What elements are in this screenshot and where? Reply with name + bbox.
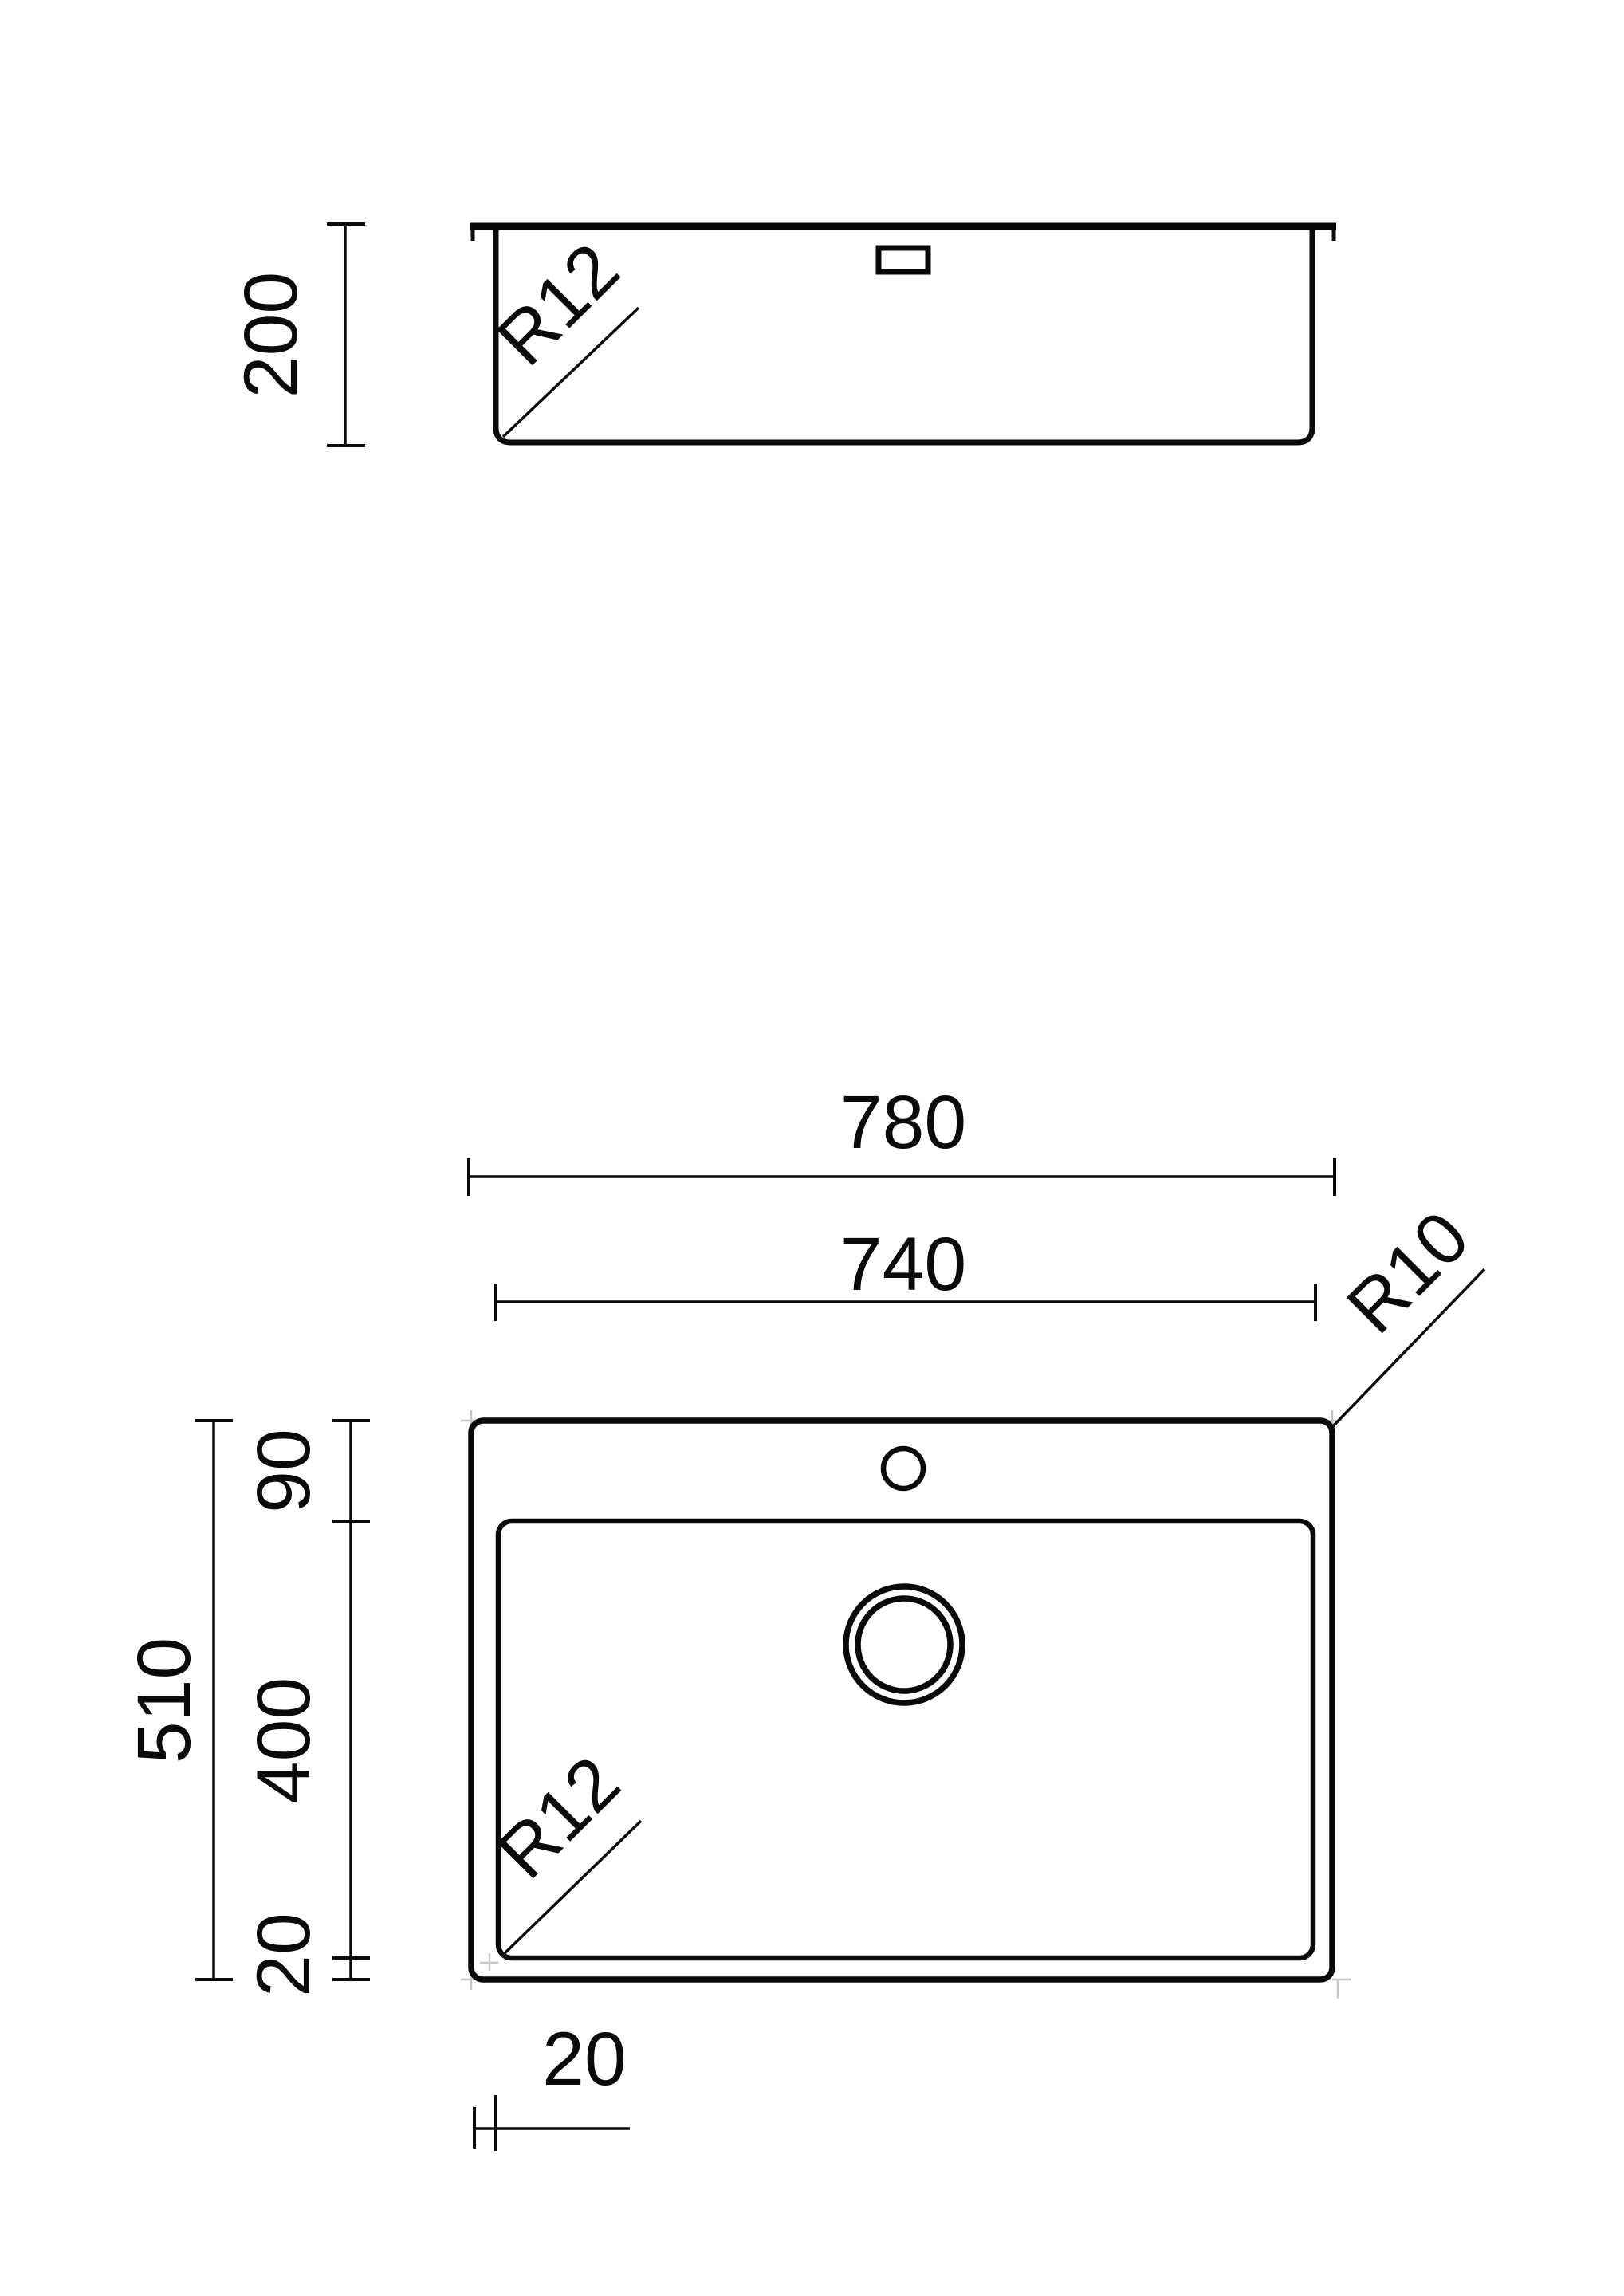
plan-drain-outer-circle xyxy=(846,1586,962,1703)
side-overflow-hole xyxy=(879,248,928,272)
plan-bowl-radius-label: R12 xyxy=(482,1741,635,1893)
side-bowl-radius-label: R12 xyxy=(482,228,634,380)
dim-400-value: 400 xyxy=(242,1677,326,1804)
dim-side-inset: 20 xyxy=(473,2017,630,2151)
corner-mark-inner-bottom-left xyxy=(480,1953,498,1971)
side-view: R12 200 xyxy=(229,224,1336,446)
sink-dimension-drawing: R12 200 xyxy=(0,0,1624,2296)
plan-outer-radius-label: R10 xyxy=(1331,1196,1484,1348)
side-depth-value: 200 xyxy=(229,272,313,399)
side-bowl-profile xyxy=(496,230,1312,442)
dim-bowl-width: 740 xyxy=(496,1222,1315,1321)
dim-overall-depth: 510 xyxy=(122,1421,233,1980)
plan-faucet-hole xyxy=(883,1449,923,1488)
corner-mark-bottom-right xyxy=(1332,1980,1351,1999)
dim-510-value: 510 xyxy=(122,1637,206,1764)
dim-depth-chain: 90 400 20 xyxy=(242,1421,370,1997)
dim-740-value: 740 xyxy=(840,1222,967,1307)
dim-780-value: 780 xyxy=(840,1080,967,1165)
dim-90-value: 90 xyxy=(242,1429,326,1513)
dim-20-bottom-value: 20 xyxy=(542,2017,627,2101)
plan-view: R10 R12 780 740 xyxy=(122,1080,1484,2151)
dim-overall-width: 780 xyxy=(469,1080,1335,1196)
dim-20-left-value: 20 xyxy=(242,1913,326,1997)
technical-drawing-sheet: R12 200 xyxy=(0,0,1624,2296)
plan-drain-inner-circle xyxy=(858,1598,950,1691)
